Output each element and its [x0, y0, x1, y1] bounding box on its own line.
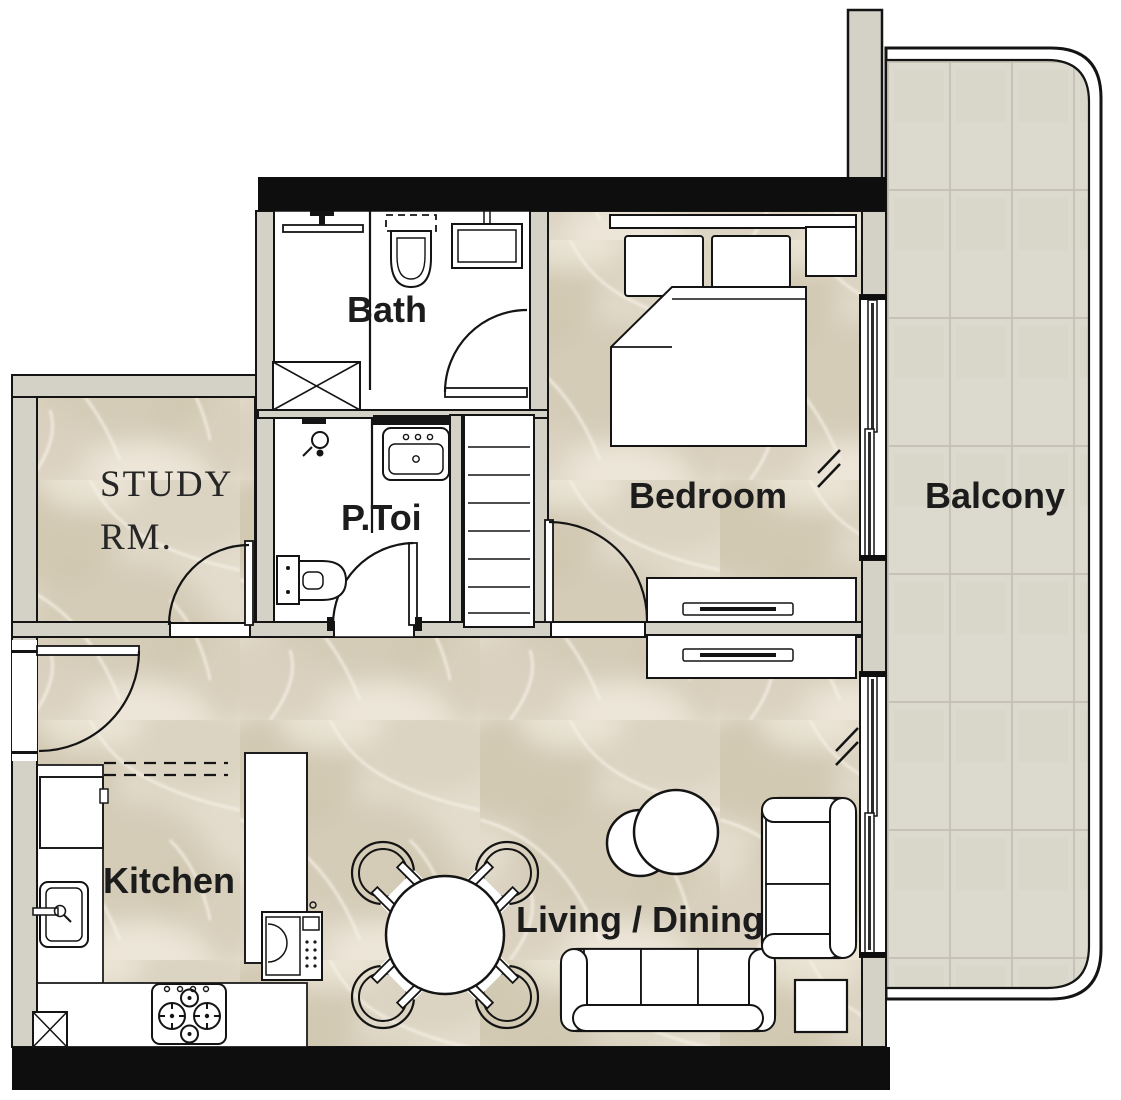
kitchen-sink-icon: [33, 882, 88, 947]
study-label-line2: RM.: [100, 511, 233, 564]
pillow-icon: [712, 236, 790, 288]
wall-black-bottom: [12, 1047, 890, 1090]
cabinet-handle-icon: [100, 789, 108, 803]
study-room-label: STUDY RM.: [100, 458, 233, 564]
oven-microwave-icon: [262, 902, 322, 980]
wall-ptoi-closet-divider: [450, 415, 462, 625]
living-dining-label: Living / Dining: [516, 902, 764, 938]
ptoi-toilet-icon: [277, 556, 346, 604]
wall-study-top: [12, 375, 264, 397]
balcony-structure: [886, 48, 1101, 999]
linen-closet-icon: [464, 415, 534, 627]
kitchen-label: Kitchen: [103, 863, 235, 899]
bedroom-label: Bedroom: [629, 478, 787, 514]
bath-label: Bath: [347, 292, 427, 328]
coffee-table-icon: [634, 790, 718, 874]
refrigerator-icon: [33, 1012, 67, 1047]
wall-corridor-b: [250, 622, 334, 637]
study-label-line1: STUDY: [100, 458, 233, 511]
wall-bedroom-living-divider: [645, 622, 862, 635]
balcony-label: Balcony: [925, 478, 1065, 514]
loveseat-icon: [762, 798, 856, 958]
bedside-table-icon: [806, 227, 856, 276]
entrance-jamb-bottom: [12, 751, 37, 754]
gas-stove-icon: [152, 984, 226, 1044]
wardrobe-icon: [647, 635, 856, 678]
round-dining-table-icon: [386, 876, 504, 994]
washing-machine-icon: [273, 362, 360, 410]
kitchen-cabinet: [40, 777, 103, 848]
entrance-jamb-top: [12, 650, 37, 653]
wall-mid-vertical: [256, 211, 274, 637]
entrance-opening: [12, 640, 37, 761]
ptoi-basin-icon: [383, 428, 449, 480]
wall-right-a: [862, 211, 886, 297]
balcony-tile-floor: [886, 60, 1089, 988]
wall-right-b: [862, 560, 886, 672]
side-table-icon: [795, 980, 847, 1032]
wall-right-c: [862, 957, 886, 1047]
sofa-icon: [561, 949, 775, 1031]
floor-plan: Bath P.Toi STUDY RM. Bedroom Balcony Kit…: [0, 0, 1121, 1100]
wall-black-top: [258, 177, 886, 211]
ptoi-counter-edge: [373, 415, 450, 425]
wardrobe-icon: [647, 578, 856, 622]
bedroom-sliding-window-icon: [860, 295, 886, 560]
living-sliding-door-icon: [860, 672, 886, 957]
wall-corridor-a: [12, 622, 170, 637]
entrance-gap: [12, 640, 37, 761]
powder-toilet-label: P.Toi: [341, 500, 422, 536]
